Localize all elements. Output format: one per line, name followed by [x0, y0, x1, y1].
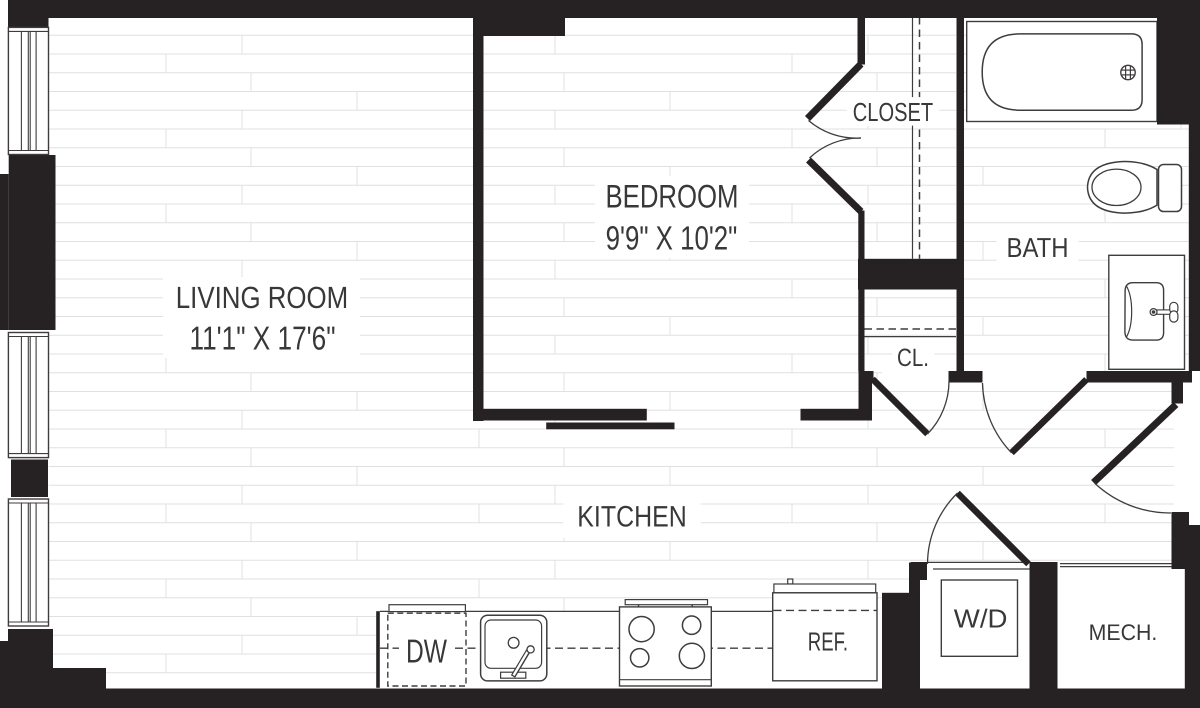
- svg-text:BEDROOM: BEDROOM: [606, 178, 739, 215]
- svg-text:CLOSET: CLOSET: [853, 97, 933, 127]
- svg-text:BATH: BATH: [1007, 232, 1069, 263]
- svg-text:LIVING ROOM: LIVING ROOM: [176, 280, 348, 315]
- svg-text:11'1" X 17'6": 11'1" X 17'6": [190, 320, 336, 357]
- svg-text:REF.: REF.: [808, 627, 848, 657]
- svg-text:KITCHEN: KITCHEN: [577, 501, 686, 534]
- svg-text:MECH.: MECH.: [1089, 620, 1158, 645]
- svg-text:9'9" X 10'2": 9'9" X 10'2": [606, 219, 738, 257]
- svg-text:W/D: W/D: [954, 604, 1008, 634]
- svg-text:DW: DW: [406, 633, 447, 670]
- svg-text:CL.: CL.: [897, 344, 929, 372]
